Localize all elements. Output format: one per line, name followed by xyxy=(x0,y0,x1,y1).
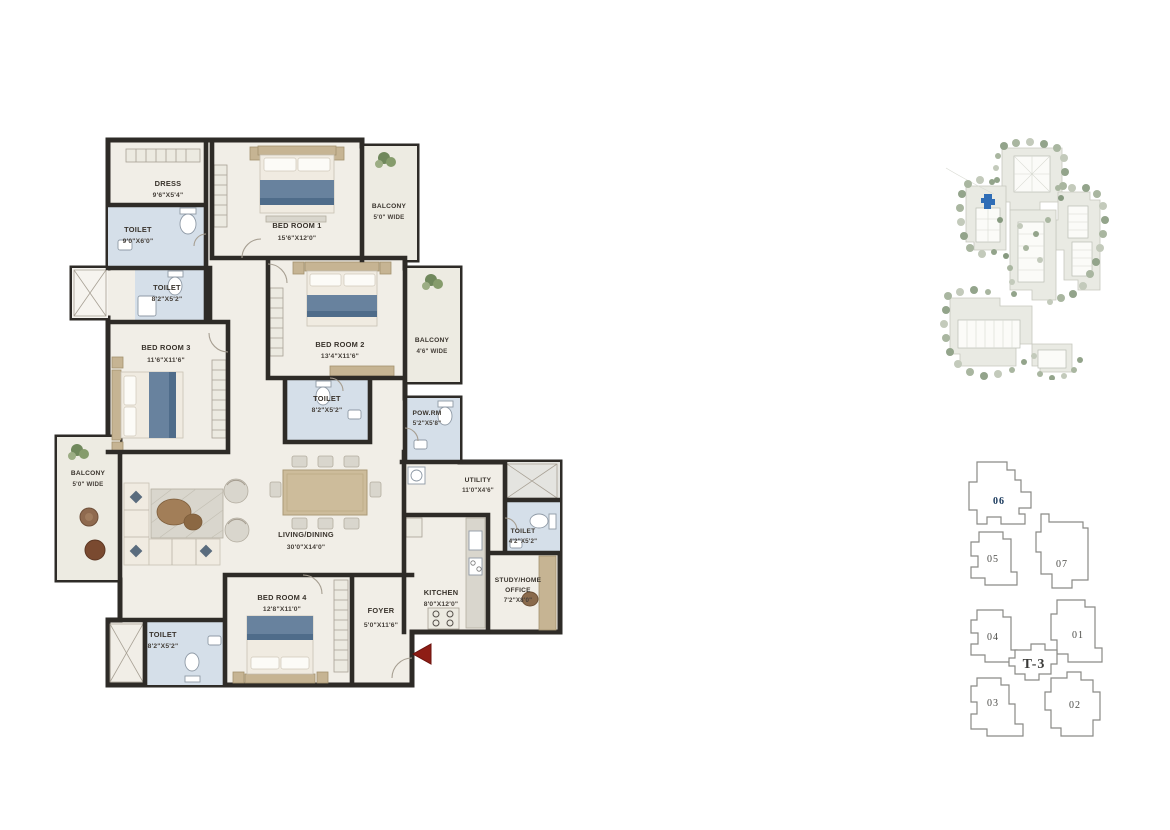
entry-arrow-icon xyxy=(413,644,431,664)
unit-02-label: 02 xyxy=(1069,700,1081,711)
unit-07-label: 07 xyxy=(1056,559,1068,570)
svg-text:7'2"X8'0": 7'2"X8'0" xyxy=(504,597,533,604)
svg-text:UTILITY: UTILITY xyxy=(465,477,492,484)
svg-text:BALCONY: BALCONY xyxy=(415,337,450,344)
svg-text:TOILET: TOILET xyxy=(153,283,181,292)
brochure-page: DRESS9'6"X5'4" TOILET9'0"X6'0" BED ROOM … xyxy=(0,0,1170,830)
svg-text:FOYER: FOYER xyxy=(368,606,395,615)
svg-text:5'2"X5'8": 5'2"X5'8" xyxy=(413,420,442,427)
svg-text:4'6" WIDE: 4'6" WIDE xyxy=(417,348,448,355)
svg-text:11'0"X4'6": 11'0"X4'6" xyxy=(462,487,494,494)
unit-07 xyxy=(1036,514,1088,588)
svg-text:5'0" WIDE: 5'0" WIDE xyxy=(374,214,405,221)
svg-text:TOILET: TOILET xyxy=(313,394,341,403)
svg-text:30'0"X14'0": 30'0"X14'0" xyxy=(287,544,326,551)
svg-text:TOILET: TOILET xyxy=(124,225,152,234)
svg-text:9'0"X6'0": 9'0"X6'0" xyxy=(123,238,154,245)
floor-plan: DRESS9'6"X5'4" TOILET9'0"X6'0" BED ROOM … xyxy=(52,126,578,702)
svg-text:11'6"X11'6": 11'6"X11'6" xyxy=(147,357,185,364)
svg-text:8'2"X5'2": 8'2"X5'2" xyxy=(312,407,343,414)
svg-text:8'0"X12'0": 8'0"X12'0" xyxy=(424,601,459,608)
svg-text:BALCONY: BALCONY xyxy=(372,203,407,210)
site-plan xyxy=(940,130,1115,380)
svg-text:9'6"X5'4": 9'6"X5'4" xyxy=(153,192,184,199)
svg-text:4'2"X5'2": 4'2"X5'2" xyxy=(509,538,538,545)
bed-1-icon xyxy=(250,146,344,222)
svg-text:12'8"X11'0": 12'8"X11'0" xyxy=(263,606,301,613)
svg-text:BED ROOM 4: BED ROOM 4 xyxy=(257,593,307,602)
unit-05-label: 05 xyxy=(987,554,999,565)
svg-text:BALCONY: BALCONY xyxy=(71,470,106,477)
unit-06-highlighted xyxy=(969,462,1031,524)
svg-text:STUDY/HOME: STUDY/HOME xyxy=(495,577,542,584)
key-plan-units xyxy=(969,462,1102,736)
svg-text:TOILET: TOILET xyxy=(511,528,536,535)
svg-text:DRESS: DRESS xyxy=(155,179,182,188)
key-plan: 06 05 07 04 01 03 02 T-3 xyxy=(955,452,1125,747)
svg-text:LIVING/DINING: LIVING/DINING xyxy=(278,530,334,539)
svg-text:OFFICE: OFFICE xyxy=(505,587,531,594)
svg-text:KITCHEN: KITCHEN xyxy=(424,588,459,597)
svg-text:BED ROOM 1: BED ROOM 1 xyxy=(272,221,321,230)
svg-text:15'6"X12'0": 15'6"X12'0" xyxy=(278,235,317,242)
svg-text:TOILET: TOILET xyxy=(149,630,177,639)
svg-text:8'2"X5'2": 8'2"X5'2" xyxy=(152,296,183,303)
svg-text:POW.RM: POW.RM xyxy=(413,410,442,417)
svg-text:5'0"X11'6": 5'0"X11'6" xyxy=(364,622,398,629)
tower-label: T-3 xyxy=(1023,657,1046,672)
unit-06-label: 06 xyxy=(993,496,1005,507)
unit-03-label: 03 xyxy=(987,698,999,709)
bed-2-icon xyxy=(293,262,391,326)
svg-text:BED ROOM 2: BED ROOM 2 xyxy=(315,340,364,349)
unit-04-label: 04 xyxy=(987,632,999,643)
svg-text:5'0" WIDE: 5'0" WIDE xyxy=(73,481,104,488)
svg-text:BED ROOM 3: BED ROOM 3 xyxy=(141,343,190,352)
unit-01-label: 01 xyxy=(1072,630,1084,641)
svg-text:8'2"X5'2": 8'2"X5'2" xyxy=(148,643,179,650)
svg-text:13'4"X11'6": 13'4"X11'6" xyxy=(321,353,359,360)
